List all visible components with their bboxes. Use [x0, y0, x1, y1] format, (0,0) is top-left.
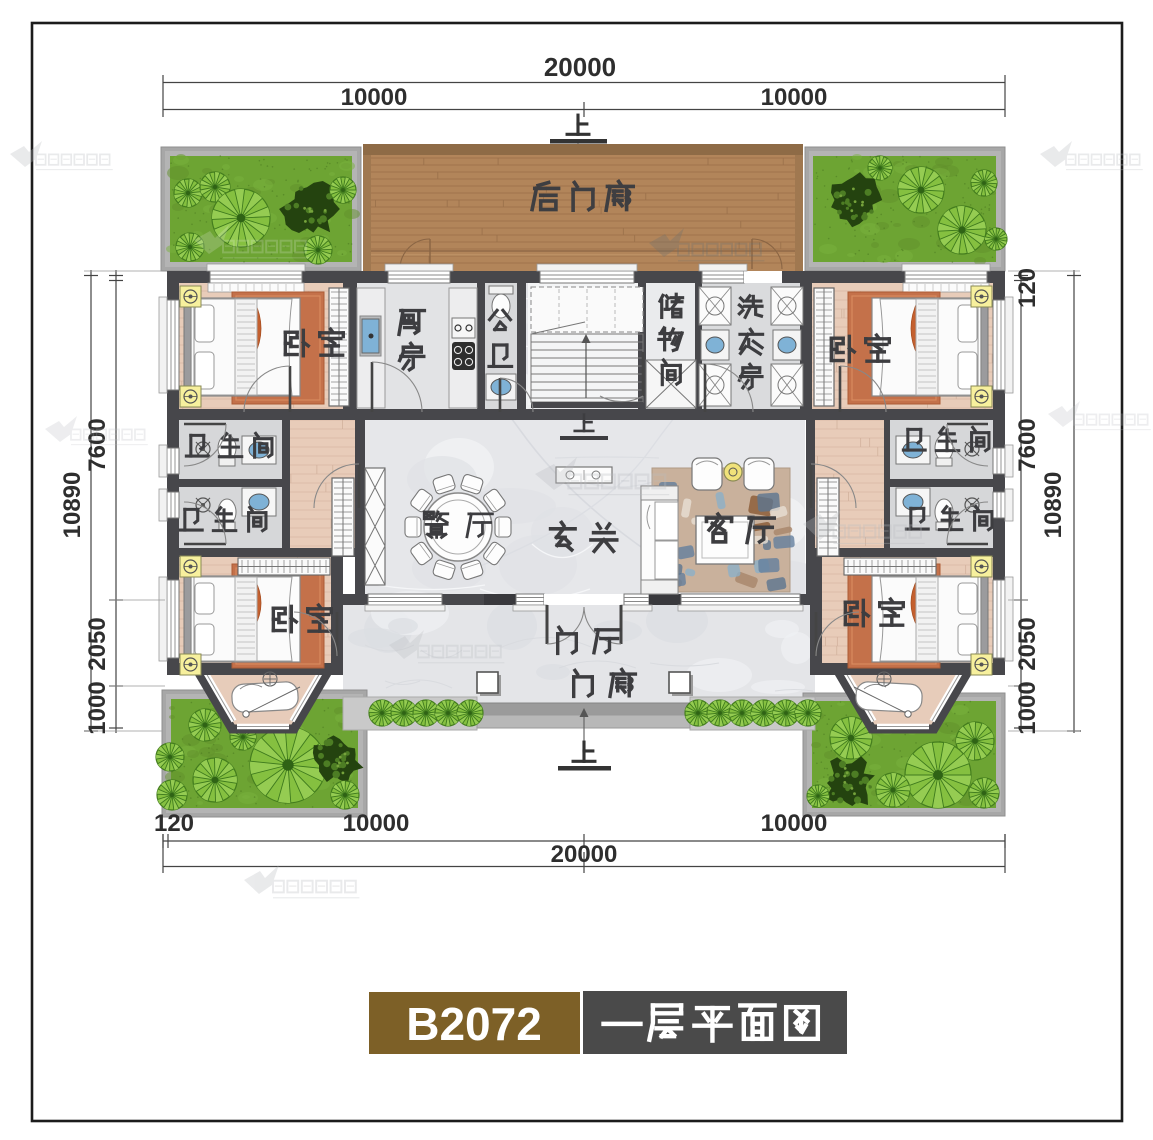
svg-text:1000: 1000	[84, 681, 111, 734]
svg-text:10890: 10890	[59, 472, 86, 539]
svg-text:10000: 10000	[761, 84, 828, 111]
svg-text:7600: 7600	[1014, 418, 1041, 471]
svg-text:20000: 20000	[544, 52, 616, 82]
svg-text:10000: 10000	[761, 810, 828, 837]
svg-text:10890: 10890	[1040, 472, 1067, 539]
svg-text:2050: 2050	[84, 617, 111, 670]
svg-text:B2072: B2072	[406, 998, 542, 1050]
svg-text:10000: 10000	[343, 810, 410, 837]
svg-text:2050: 2050	[1014, 617, 1041, 670]
svg-text:1000: 1000	[1014, 681, 1041, 734]
svg-text:120: 120	[154, 810, 194, 837]
svg-text:10000: 10000	[341, 84, 408, 111]
svg-text:120: 120	[1014, 268, 1041, 308]
svg-text:20000: 20000	[551, 841, 618, 868]
